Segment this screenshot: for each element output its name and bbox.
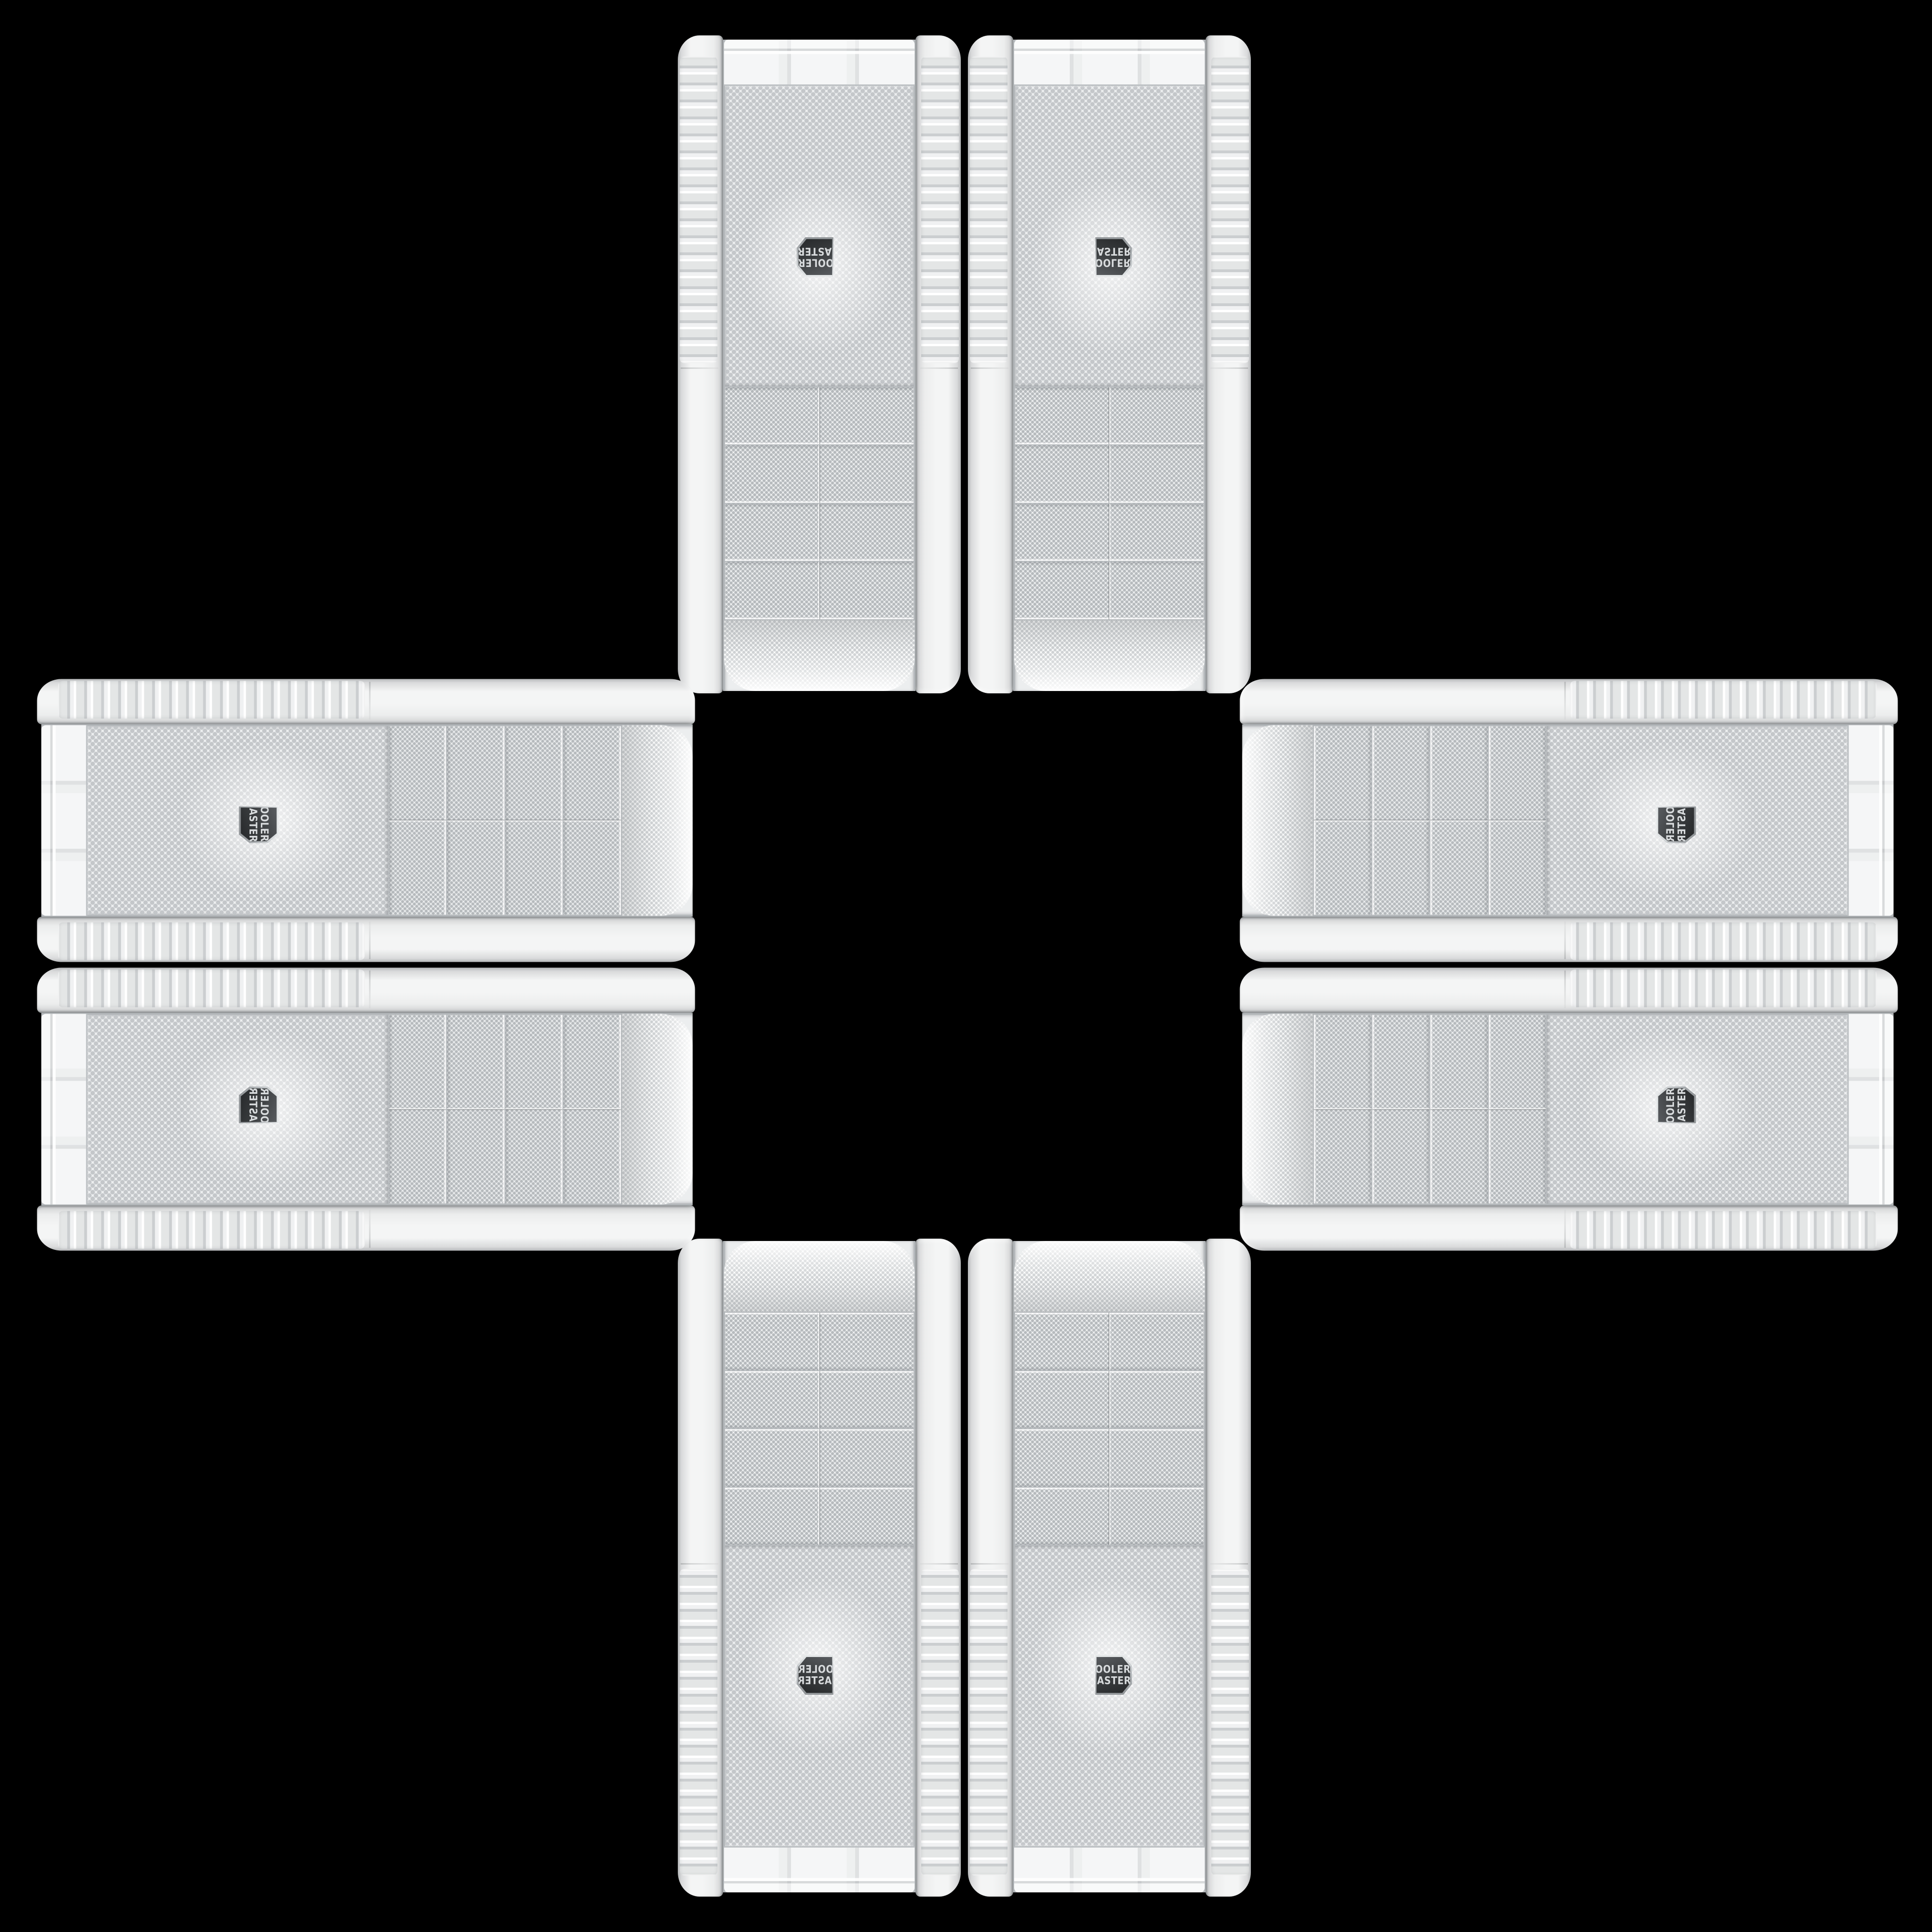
fan-mesh: COOLER MASTER <box>86 726 388 915</box>
side-rail-left <box>1240 1206 1898 1251</box>
cooler-master-badge: COOLER MASTER <box>239 798 279 843</box>
drive-bay-strip <box>1015 503 1204 561</box>
drive-bay-strip <box>1372 726 1431 915</box>
drive-bay-section <box>1015 386 1204 619</box>
mesh-top-cap <box>1014 619 1205 691</box>
brand-text-line2: MASTER <box>248 1087 258 1131</box>
side-rail-left <box>968 35 1013 693</box>
side-rail-right <box>1206 35 1251 693</box>
side-rail-left <box>968 1239 1013 1897</box>
mesh-top-cap <box>1242 1014 1314 1205</box>
rail-ribs <box>1570 970 1877 1008</box>
drive-bay-strip <box>725 1429 914 1488</box>
bottom-bezel <box>724 40 915 86</box>
drive-bay-strip <box>505 726 563 915</box>
brand-text-line2: MASTER <box>798 246 841 257</box>
fan-mesh: COOLER MASTER <box>1547 726 1849 915</box>
rail-ribs <box>680 1569 717 1875</box>
drive-bay-strip <box>388 1015 447 1204</box>
side-rail-left <box>37 679 695 724</box>
drive-bay-strip <box>725 503 914 561</box>
front-panel: COOLER MASTER <box>1242 724 1894 917</box>
brand-text-line1: COOLER <box>1666 1088 1676 1130</box>
brand-text-line2: MASTER <box>1677 799 1687 842</box>
brand-text-line2: MASTER <box>1088 1675 1131 1686</box>
drive-bay-strip <box>725 1488 914 1546</box>
mesh-top-cap <box>724 1241 915 1313</box>
mesh-top-cap <box>621 1014 693 1205</box>
mesh-top-cap <box>1242 725 1314 916</box>
brand-text-line1: COOLER <box>259 1088 270 1130</box>
fan-mesh: COOLER MASTER <box>1547 1015 1849 1204</box>
bottom-bezel <box>1014 40 1205 86</box>
drive-bay-strip <box>1489 726 1547 915</box>
badge-face: COOLER MASTER <box>799 239 840 275</box>
drive-bay-strip <box>388 726 447 915</box>
drive-bay-section <box>725 1313 914 1546</box>
drive-bay-strip <box>1372 1015 1431 1204</box>
side-rail-right <box>678 35 723 693</box>
bottom-bezel <box>1848 1014 1894 1205</box>
mesh-top-cap <box>1014 1241 1205 1313</box>
badge-face: COOLER MASTER <box>1658 1089 1694 1130</box>
drive-bay-strip <box>505 1015 563 1204</box>
drive-bay-strip <box>1314 1015 1373 1204</box>
tower-bottom-right: COOLER MASTER <box>968 1239 1251 1897</box>
drive-bay-strip <box>563 726 621 915</box>
tower-left-lower: COOLER MASTER <box>37 968 695 1251</box>
badge-face: COOLER MASTER <box>241 800 277 841</box>
cooler-master-badge: COOLER MASTER <box>1657 798 1696 843</box>
drive-bay-section <box>388 1015 621 1204</box>
rail-ribs <box>680 57 717 363</box>
cooler-master-badge: COOLER MASTER <box>1087 237 1132 277</box>
badge-face: COOLER MASTER <box>799 1657 840 1693</box>
drive-bay-strip <box>563 1015 621 1204</box>
drive-bay-strip <box>725 561 914 620</box>
drive-bay-strip <box>1431 1015 1489 1204</box>
side-rail-right <box>37 968 695 1013</box>
brand-text-line1: COOLER <box>1088 258 1131 268</box>
rail-ribs <box>1211 57 1249 363</box>
scene: COOLER MASTER <box>0 0 1932 1932</box>
brand-text-line2: MASTER <box>248 799 258 842</box>
drive-bay-strip <box>1015 561 1204 620</box>
drive-bay-section <box>725 386 914 619</box>
side-rail-left <box>37 1206 695 1251</box>
cooler-master-badge: COOLER MASTER <box>239 1087 279 1132</box>
fan-mesh: COOLER MASTER <box>86 1015 388 1204</box>
drive-bay-strip <box>1015 1488 1204 1546</box>
drive-bay-strip <box>1015 1429 1204 1488</box>
brand-text-line2: MASTER <box>798 1675 841 1686</box>
bottom-bezel <box>42 1014 88 1205</box>
bottom-bezel <box>724 1846 915 1892</box>
front-panel: COOLER MASTER <box>1242 1013 1894 1206</box>
bottom-bezel <box>1014 1846 1205 1892</box>
badge-face: COOLER MASTER <box>1089 1657 1130 1693</box>
bottom-bezel <box>42 725 88 916</box>
cooler-master-badge: COOLER MASTER <box>797 1655 842 1695</box>
rail-ribs <box>58 681 365 719</box>
tower-top-right: COOLER MASTER <box>968 35 1251 693</box>
drive-bay-strip <box>1015 445 1204 503</box>
side-rail-right <box>1240 917 1898 962</box>
tower-bottom-left: COOLER MASTER <box>678 1239 961 1897</box>
drive-bay-strip <box>1015 386 1204 445</box>
drive-bay-strip <box>725 386 914 445</box>
rail-ribs <box>1211 1569 1249 1875</box>
drive-bay-strip <box>725 1371 914 1430</box>
front-panel: COOLER MASTER <box>723 1241 916 1892</box>
side-rail-left <box>916 1239 961 1897</box>
side-rail-right <box>678 1239 723 1897</box>
drive-bay-strip <box>1015 1313 1204 1371</box>
brand-text-line2: MASTER <box>1677 1087 1687 1131</box>
tower-top-left: COOLER MASTER <box>678 35 961 693</box>
brand-text-line2: MASTER <box>1088 246 1131 257</box>
side-rail-left <box>916 35 961 693</box>
brand-text-line1: COOLER <box>259 799 270 841</box>
drive-bay-strip <box>725 445 914 503</box>
brand-text-line1: COOLER <box>1088 1664 1131 1674</box>
front-panel: COOLER MASTER <box>1013 40 1206 691</box>
drive-bay-strip <box>1314 726 1373 915</box>
mesh-top-cap <box>621 725 693 916</box>
side-rail-right <box>37 917 695 962</box>
fan-mesh: COOLER MASTER <box>725 84 914 386</box>
tower-right-lower: COOLER MASTER <box>1240 968 1898 1251</box>
cooler-master-badge: COOLER MASTER <box>797 237 842 277</box>
rail-ribs <box>58 923 365 960</box>
rail-ribs <box>1570 681 1877 719</box>
mesh-top-cap <box>724 619 915 691</box>
side-rail-right <box>1240 968 1898 1013</box>
front-panel: COOLER MASTER <box>1013 1241 1206 1892</box>
fan-mesh: COOLER MASTER <box>725 1546 914 1848</box>
cooler-master-badge: COOLER MASTER <box>1087 1655 1132 1695</box>
fan-mesh: COOLER MASTER <box>1015 84 1204 386</box>
rail-ribs <box>921 1569 959 1875</box>
cooler-master-badge: COOLER MASTER <box>1657 1087 1696 1132</box>
drive-bay-strip <box>1015 1371 1204 1430</box>
brand-text-line1: COOLER <box>1666 799 1676 841</box>
drive-bay-section <box>388 726 621 915</box>
rail-ribs <box>921 57 959 363</box>
drive-bay-strip <box>446 1015 505 1204</box>
drive-bay-strip <box>1431 726 1489 915</box>
rail-ribs <box>970 1569 1008 1875</box>
bottom-bezel <box>1848 725 1894 916</box>
badge-face: COOLER MASTER <box>241 1089 277 1130</box>
rail-ribs <box>1570 923 1877 960</box>
fan-mesh: COOLER MASTER <box>1015 1546 1204 1848</box>
side-rail-right <box>1206 1239 1251 1897</box>
drive-bay-strip <box>725 1313 914 1371</box>
tower-left-upper: COOLER MASTER <box>37 679 695 962</box>
brand-text-line1: COOLER <box>798 1664 841 1674</box>
front-panel: COOLER MASTER <box>42 724 693 917</box>
rail-ribs <box>58 1211 365 1249</box>
tower-right-upper: COOLER MASTER <box>1240 679 1898 962</box>
front-panel: COOLER MASTER <box>723 40 916 691</box>
brand-text-line1: COOLER <box>798 258 841 268</box>
side-rail-left <box>1240 679 1898 724</box>
drive-bay-section <box>1314 726 1547 915</box>
rail-ribs <box>1570 1211 1877 1249</box>
badge-face: COOLER MASTER <box>1089 239 1130 275</box>
drive-bay-section <box>1015 1313 1204 1546</box>
front-panel: COOLER MASTER <box>42 1013 693 1206</box>
drive-bay-section <box>1314 1015 1547 1204</box>
badge-face: COOLER MASTER <box>1658 800 1694 841</box>
rail-ribs <box>58 970 365 1008</box>
rail-ribs <box>970 57 1008 363</box>
drive-bay-strip <box>446 726 505 915</box>
drive-bay-strip <box>1489 1015 1547 1204</box>
